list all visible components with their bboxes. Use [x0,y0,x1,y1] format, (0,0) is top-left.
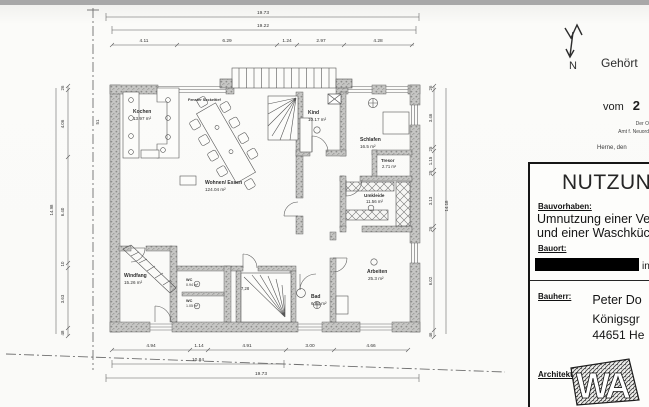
stamp-vom-line: vom2 [603,98,640,113]
bauort-suffix: in [642,261,649,272]
room-area: 124.04 m² [205,187,226,192]
room-area: 11.56 m² [366,199,384,204]
dim-seg: 48 [60,330,65,335]
titleblock-divider [530,280,649,281]
dim-seg: 4.91 [242,343,252,349]
north-arrow-icon: N [556,22,596,80]
stamp-vom-label: vom [603,101,624,113]
bauherr-city: 44651 He [592,328,644,344]
stamp-herne-line: Herne, den [597,145,627,151]
bauherr-street: Königsgr [592,312,644,328]
redaction-bar [535,258,639,271]
room-area: 0.94 m² [186,283,199,287]
dim-seg: 4.06 [60,119,65,128]
room-name: WC [186,278,193,282]
room-area: 25.3 m² [368,276,384,281]
floor-plan-drawing: 19.73 19.22 4.11 6.29 1.24 2.97 4.28 4.9… [0,0,527,407]
room-name: Schlafen [360,137,381,143]
bauherr-name: Peter Do [592,292,644,308]
room-area: 2.71 m² [382,164,397,169]
dim-total-right: 14.18 [444,200,449,212]
dim-mid-total: 10.84 [192,357,204,363]
room-area: 6.84 m² [311,301,327,306]
bauherr-row: Bauherr: Peter Do Königsgr 44651 He [530,292,649,343]
dim-total-bottom: 19.73 [255,371,267,377]
bauvorhaben-label: Bauvorhaben: [538,202,649,211]
room-area: 13.97 m² [133,116,152,121]
titleblock-header: NUTZUNG [530,164,649,198]
window-note: Fenster Sockeltief [188,98,221,102]
dim-seg: 26 [428,226,433,231]
bauvorhaben-line2: und einer Waschküche [537,226,649,240]
room-name: Wohnen/ Essen [205,180,242,186]
bauort-row: in [535,256,649,274]
room-area: 10.17 m² [308,117,327,122]
bauort-label: Bauort: [538,244,649,253]
stamp-small-print: Der O Amt f. Neuord [566,120,649,136]
room-area: 16.5 m² [360,144,376,149]
stamp-small-line: Der O [566,120,649,128]
dim-seg: 26 [428,85,433,90]
bauherr-label: Bauherr: [538,292,571,342]
dim-seg: 4.94 [146,343,156,349]
room-name: Bad [311,294,320,300]
dim-seg: 26 [60,85,65,90]
architect-logo-icon: WA [565,356,643,406]
dim-seg: 4.66 [366,343,376,349]
dim-seg: 1.14 [194,343,204,349]
dim-seg: 25 [428,170,433,175]
dim-total-inner-top: 19.22 [257,23,269,29]
stamp-small-line: Amt f. Neuord [566,128,649,136]
dim-seg: 4.11 [140,38,149,44]
bauvorhaben-line1: Umnutzung einer Versi [537,212,649,226]
dim-seg: 1.24 [282,38,292,44]
dim-seg: 1.15 [428,156,433,165]
dim-seg: 6.02 [428,276,433,285]
room-name: Kochen [133,109,151,115]
dim-seg: 3.46 [428,113,433,122]
dim-seg: 25 [428,146,433,151]
stair-value: 7,28 [241,286,250,291]
room-name: WC [186,299,193,303]
stamp-gehoert-text: Gehört [601,56,638,70]
dim-seg: 46 [428,332,433,337]
dimension-chain-right: 26 3.46 25 1.15 25 3.13 26 6.02 46 14.18 [428,84,449,339]
dim-edge-mark: 51 [95,119,100,124]
room-name: Kind [308,110,319,116]
dim-seg: 3.00 [305,343,315,349]
room-name: Umkleide [364,193,385,198]
bauherr-details: Peter Do Königsgr 44651 He [592,292,644,343]
dim-total-outer-top: 19.73 [257,10,269,16]
dim-seg: 6.29 [222,38,232,44]
room-name: Windfang [124,273,147,279]
room-area: 1.05 m² [186,304,199,308]
title-block: NUTZUNG Bauvorhaben: Umnutzung einer Ver… [528,162,649,407]
dim-seg: 6.40 [60,207,65,216]
dim-seg: 3.13 [428,196,433,205]
dim-total-left: 14.98 [49,204,54,216]
dimension-chain-bottom: 4.94 1.14 4.91 3.00 4.66 10.84 19.73 [106,343,419,382]
dim-seg: 10 [60,261,65,266]
north-label: N [569,60,577,72]
stamp-number: 2 [633,98,640,113]
dim-seg: 3.63 [60,294,65,303]
dimension-chain-top: 19.73 19.22 4.11 6.29 1.24 2.97 4.28 [106,10,419,47]
room-name: Tresor [381,158,395,163]
dim-seg: 4.28 [373,38,383,44]
room-name: Arbeiten [367,269,387,275]
room-area: 15.26 m² [124,280,143,285]
dim-seg: 2.97 [316,38,326,44]
svg-text:WA: WA [576,365,631,406]
dimension-chain-left: 26 4.06 6.40 10 3.63 48 14.98 51 [49,84,100,338]
